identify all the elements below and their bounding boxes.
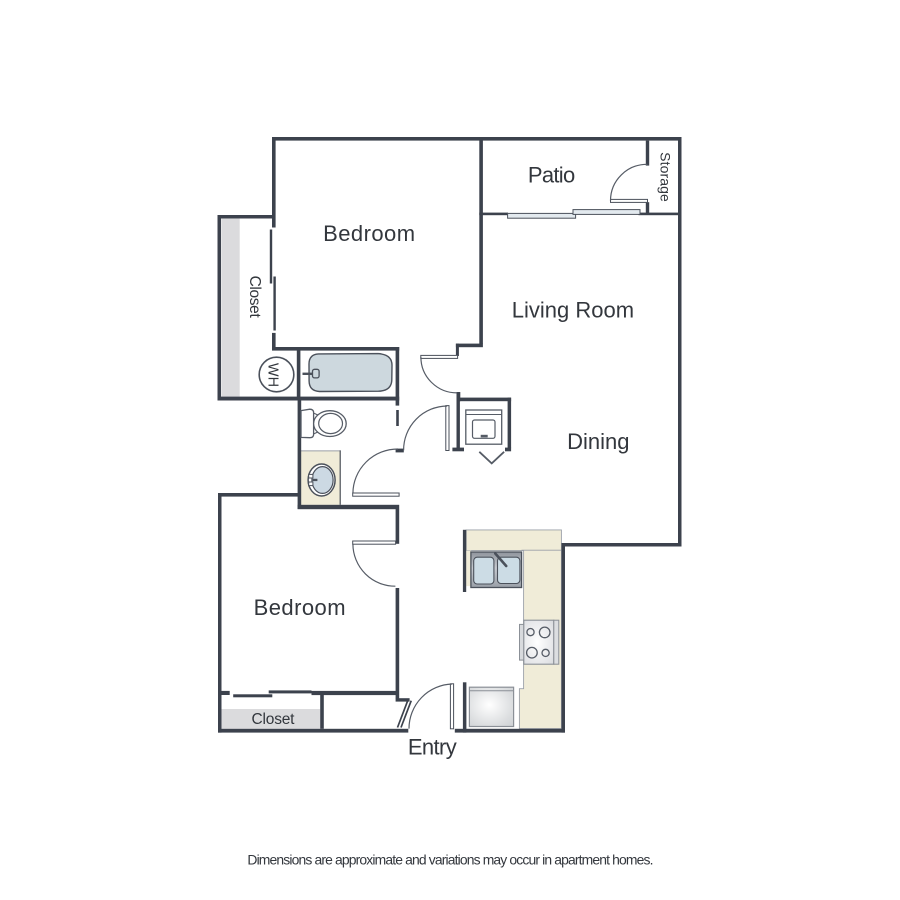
svg-text:Closet: Closet (246, 276, 263, 319)
svg-text:Bedroom: Bedroom (254, 595, 346, 620)
svg-text:Patio: Patio (528, 163, 575, 188)
svg-text:Dining: Dining (567, 429, 629, 454)
svg-text:Entry: Entry (408, 735, 457, 760)
svg-text:Storage: Storage (658, 152, 674, 202)
svg-text:Bedroom: Bedroom (323, 221, 415, 246)
svg-text:Living Room: Living Room (512, 298, 634, 323)
svg-text:Closet: Closet (252, 711, 296, 728)
svg-text:WH: WH (265, 363, 281, 387)
svg-text:Dimensions are approximate and: Dimensions are approximate and variation… (247, 851, 652, 867)
